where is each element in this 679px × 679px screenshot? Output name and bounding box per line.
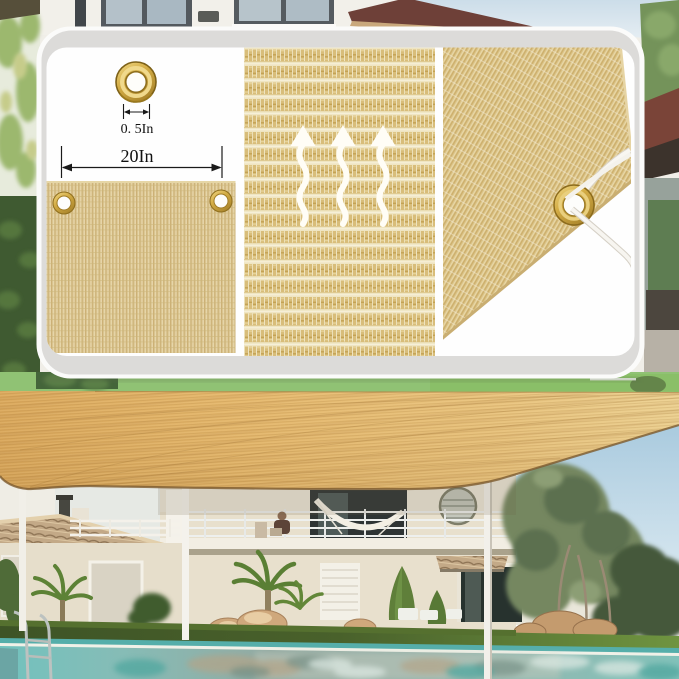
- svg-text:0. 5In: 0. 5In: [121, 122, 154, 137]
- svg-text:20In: 20In: [121, 146, 154, 166]
